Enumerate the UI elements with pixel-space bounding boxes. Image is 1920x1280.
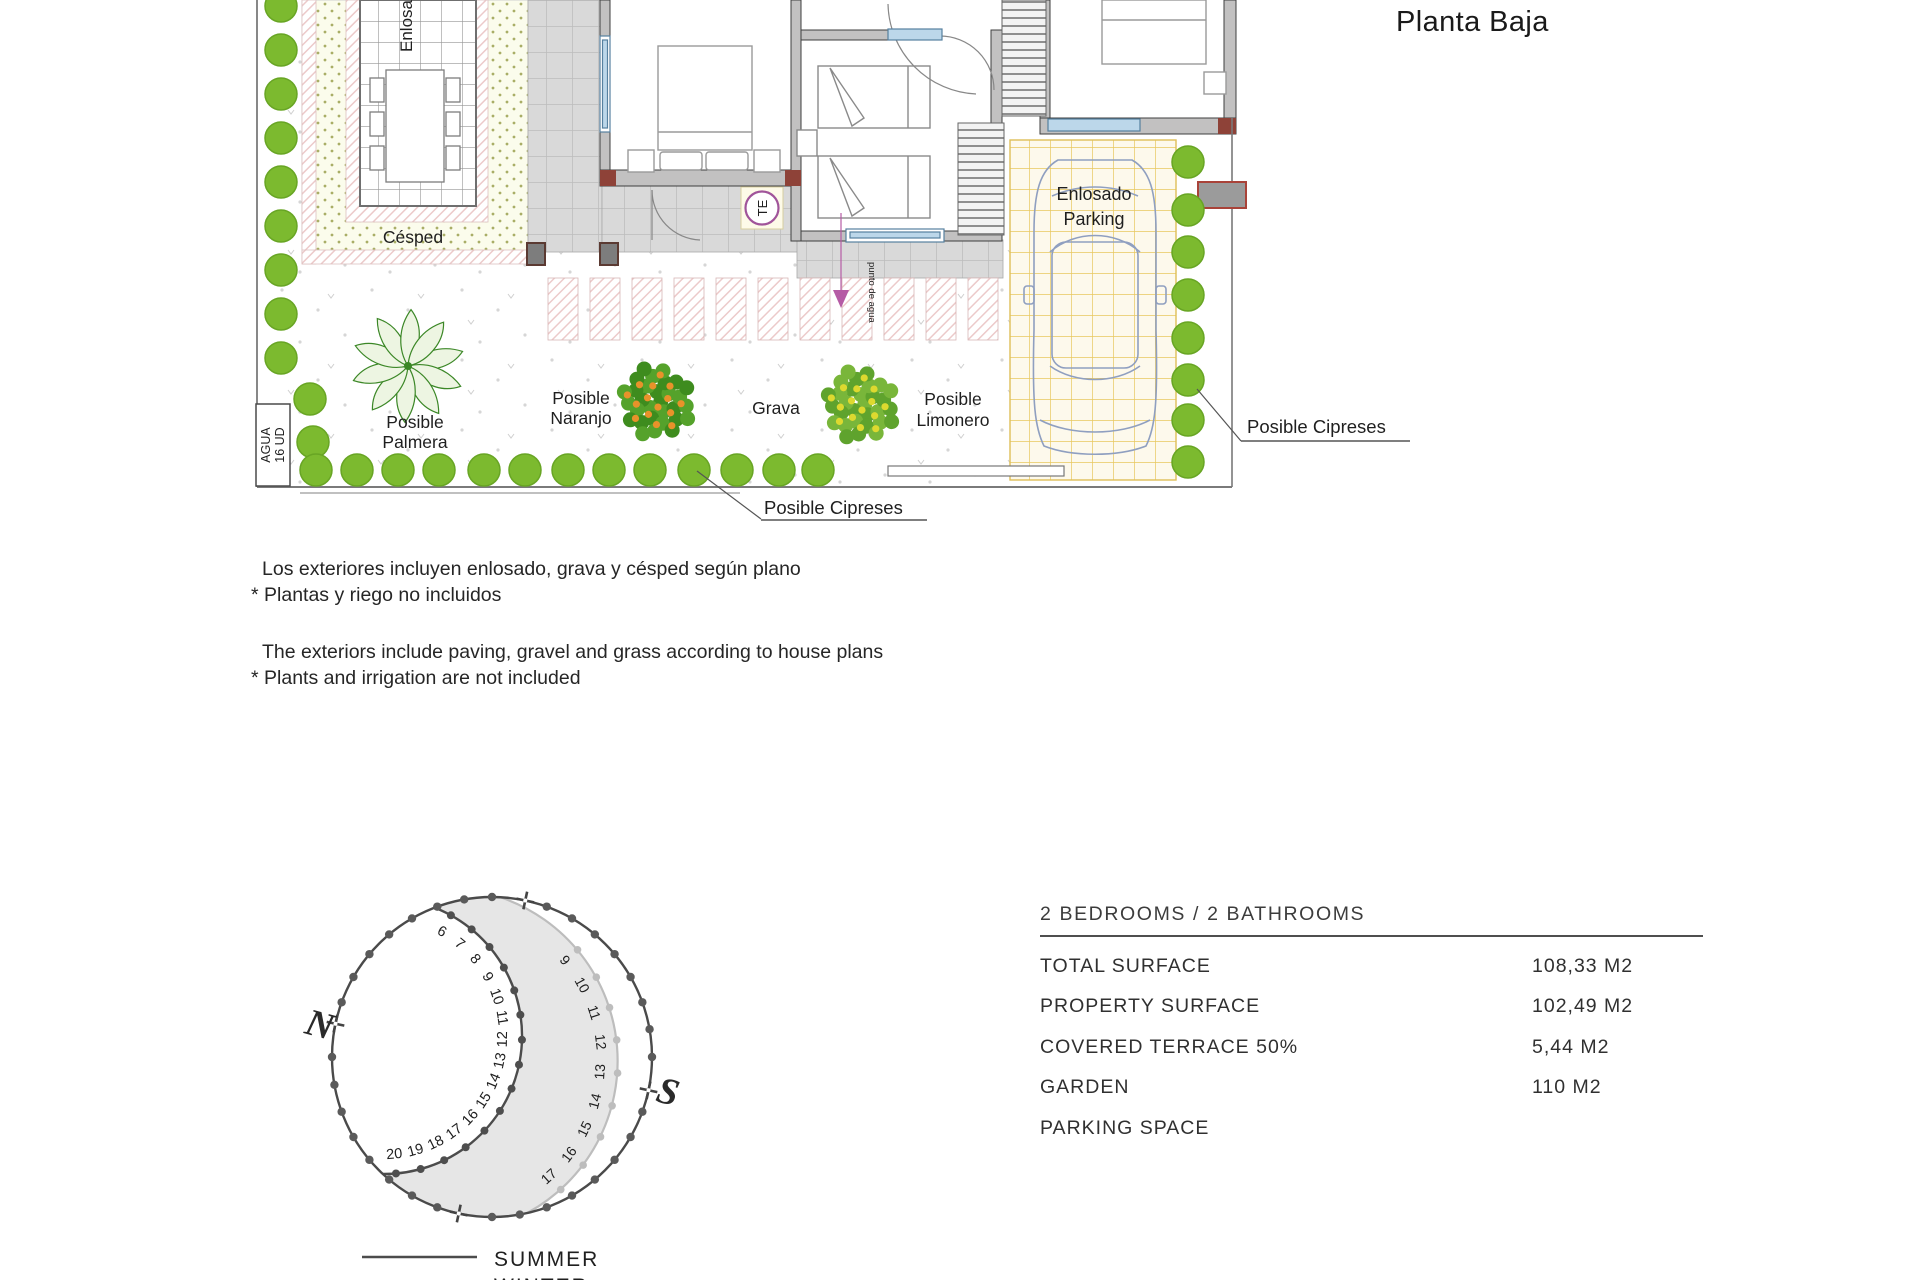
te-label: TE	[755, 199, 770, 216]
exterior-notes: Los exteriores incluyen enlosado, grava …	[251, 556, 883, 691]
sun-hour-label: 17	[443, 1121, 465, 1143]
sun-hour-label: 11	[493, 1009, 511, 1026]
south-label: S	[652, 1069, 683, 1115]
parking-gate	[888, 466, 1064, 476]
dining-table	[370, 70, 460, 182]
label-cipreses-bottom: Posible Cipreses	[764, 497, 903, 518]
utility-box	[1198, 182, 1246, 208]
sun-hour-label: 6	[434, 923, 449, 941]
spec-row: PROPERTY SURFACE102,49 M2	[1040, 978, 1703, 1019]
label-cipreses-right: Posible Cipreses	[1247, 416, 1386, 437]
note-en-2: * Plants and irrigation are not included	[251, 665, 883, 691]
shade-strips	[548, 278, 998, 340]
sun-hour-label: 13	[591, 1063, 608, 1080]
twin-window	[850, 232, 940, 238]
summer-legend-label: SUMMER	[494, 1248, 599, 1271]
spec-label: PARKING SPACE	[1040, 1117, 1209, 1140]
sun-hour-label: 19	[406, 1141, 426, 1161]
spec-label: COVERED TERRACE 50%	[1040, 1036, 1298, 1059]
sun-legend: SUMMER WINTER	[362, 1248, 599, 1280]
spec-table: 2 BEDROOMS / 2 BATHROOMS TOTAL SURFACE10…	[1040, 903, 1703, 1140]
page-title: Planta Baja	[1396, 6, 1549, 39]
spec-row: PARKING SPACE	[1040, 1099, 1703, 1140]
agua-units-label: 16 UD	[273, 427, 287, 462]
sun-hour-label: 20	[386, 1146, 403, 1163]
brochure-page: TE AGUA 16 UD punto de agua	[0, 0, 1920, 1280]
spec-value: 108,33 M2	[1532, 955, 1633, 978]
label-naranjo-2: Naranjo	[550, 408, 611, 428]
sun-hour-label: 7	[451, 935, 467, 952]
slatted-strip-side	[958, 123, 1004, 235]
label-limonero-2: Limonero	[917, 410, 990, 430]
spec-value: 5,44 M2	[1532, 1036, 1609, 1059]
spec-row: GARDEN110 M2	[1040, 1059, 1703, 1100]
water-box: AGUA 16 UD	[256, 404, 290, 486]
label-cesped: Césped	[383, 227, 443, 247]
spec-heading: 2 BEDROOMS / 2 BATHROOMS	[1040, 903, 1703, 926]
sun-hour-label: 15	[473, 1089, 495, 1111]
sun-hour-label: 8	[466, 951, 483, 967]
sun-hour-label: 10	[486, 986, 506, 1007]
label-palmera-2: Palmera	[382, 432, 447, 452]
label-enlosado-top: Enlosado	[397, 0, 416, 52]
agua-label: AGUA	[259, 427, 273, 463]
sun-hour-label: 12	[592, 1033, 610, 1051]
sun-hour-label: 14	[484, 1071, 505, 1092]
winter-legend-label: WINTER	[494, 1275, 589, 1280]
sun-hour-label: 12	[495, 1031, 511, 1048]
entry-door-leaf	[888, 29, 942, 40]
sun-hour-label: 13	[491, 1051, 510, 1070]
sun-hour-label: 18	[425, 1132, 447, 1153]
label-limonero-1: Posible	[924, 389, 981, 409]
note-en-1: The exteriors include paving, gravel and…	[251, 639, 883, 665]
spec-row: TOTAL SURFACE108,33 M2	[1040, 937, 1703, 978]
spec-value: 110 M2	[1532, 1076, 1602, 1099]
sun-path-diagram: 6789101112131415161718192091011121314151…	[300, 890, 684, 1224]
label-naranjo-1: Posible	[552, 388, 609, 408]
label-grava: Grava	[752, 398, 800, 418]
spec-row: COVERED TERRACE 50%5,44 M2	[1040, 1018, 1703, 1059]
water-point-label: punto de agua	[866, 262, 877, 323]
master-window	[603, 40, 608, 128]
spec-label: GARDEN	[1040, 1076, 1129, 1099]
slatted-strip-top	[1002, 0, 1046, 116]
label-parking-2: Parking	[1063, 209, 1124, 229]
spec-label: PROPERTY SURFACE	[1040, 995, 1260, 1018]
spec-rows: TOTAL SURFACE108,33 M2PROPERTY SURFACE10…	[1040, 937, 1703, 1140]
neighbor-window	[1048, 119, 1140, 131]
note-es-1: Los exteriores incluyen enlosado, grava …	[251, 556, 883, 582]
spec-label: TOTAL SURFACE	[1040, 955, 1211, 978]
sun-hour-label: 16	[459, 1106, 482, 1129]
sun-hour-label: 9	[478, 970, 496, 985]
te-symbol: TE	[741, 187, 783, 229]
note-es-2: * Plantas y riego no incluidos	[251, 582, 883, 608]
spec-value: 102,49 M2	[1532, 995, 1633, 1018]
label-parking-1: Enlosado	[1056, 184, 1131, 204]
label-palmera-1: Posible	[386, 412, 443, 432]
